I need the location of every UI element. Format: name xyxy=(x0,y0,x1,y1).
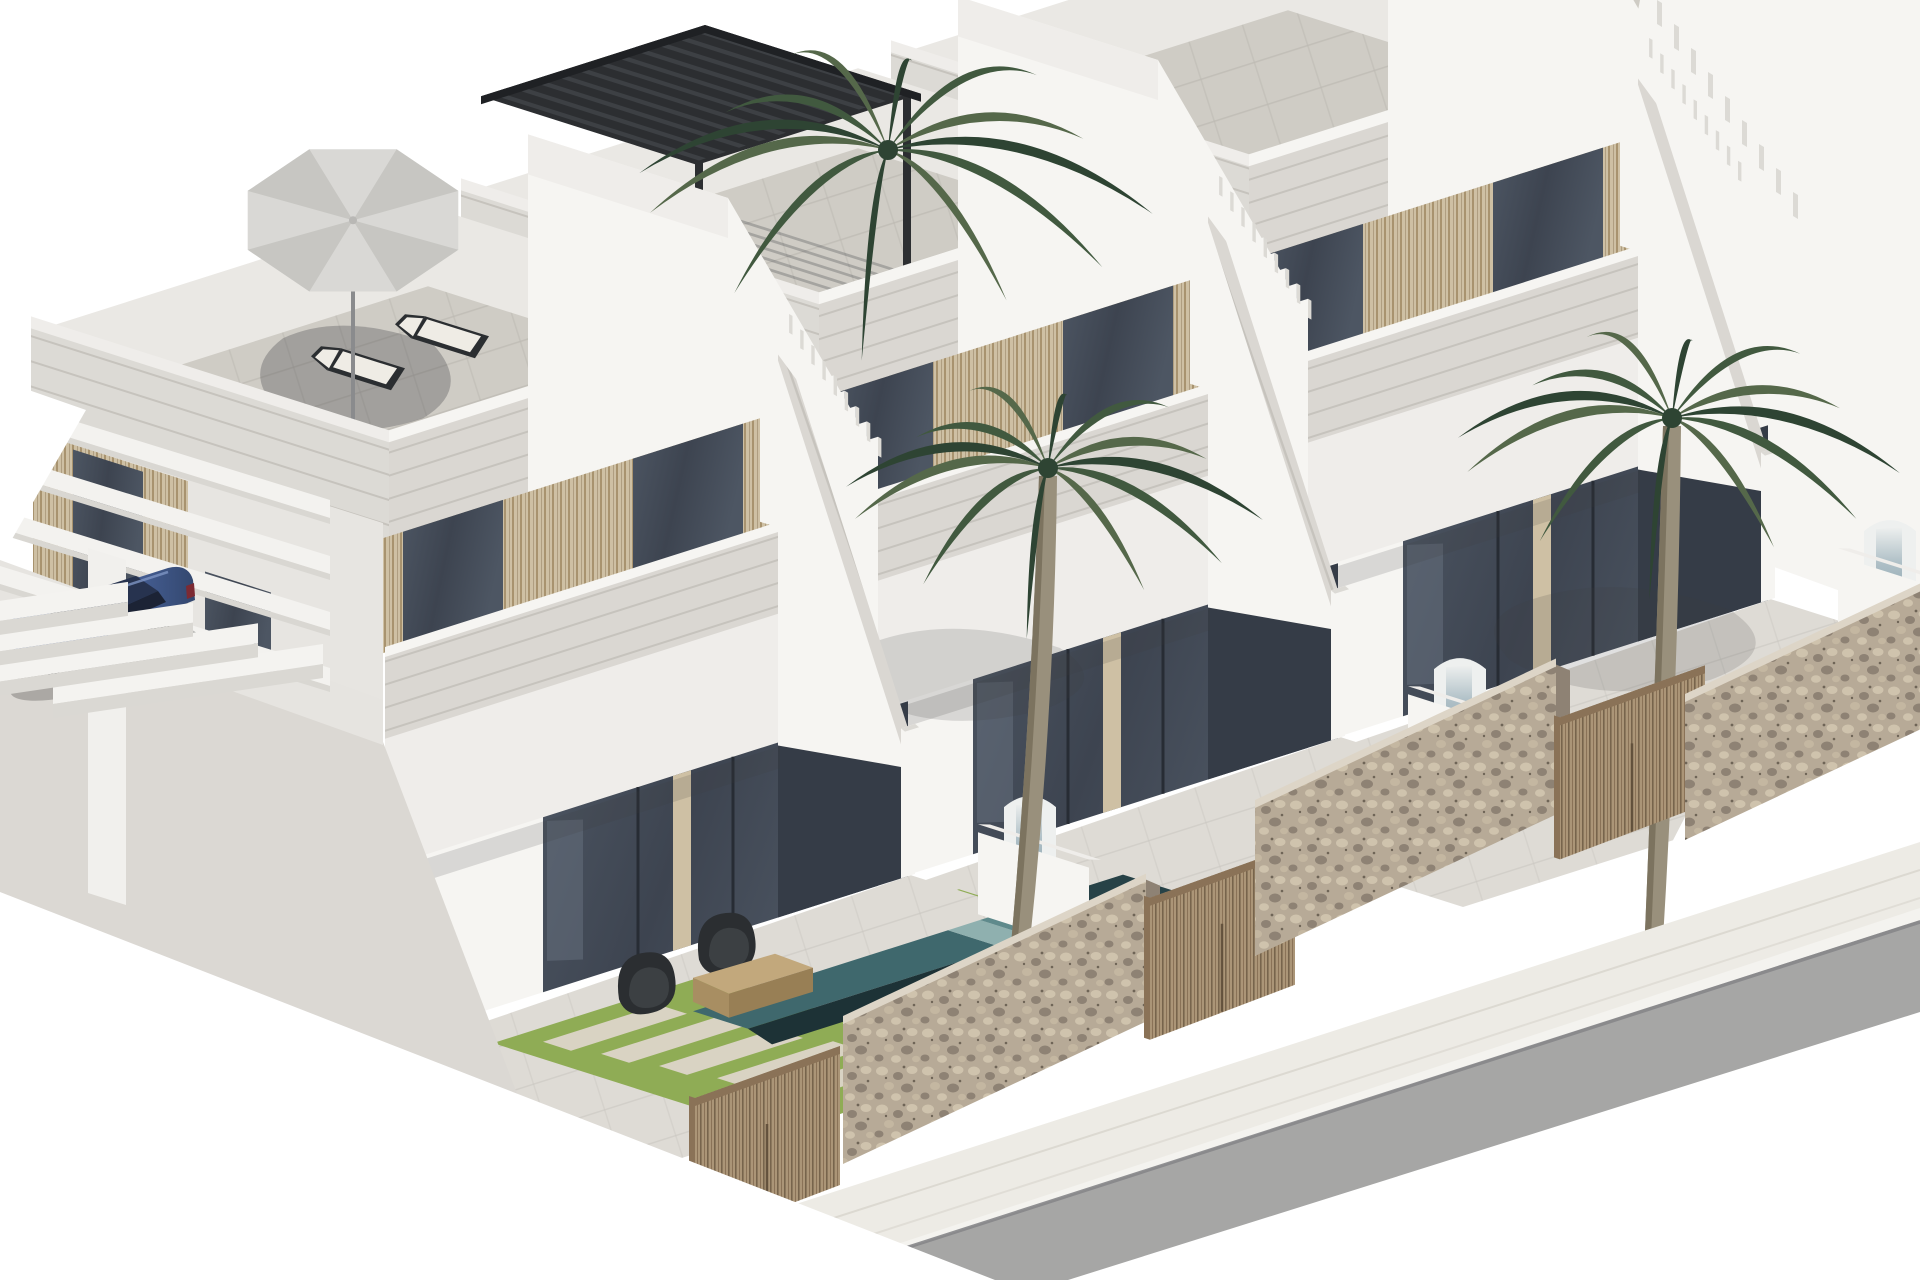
stair-step-face xyxy=(867,421,870,442)
stair-step-face xyxy=(1649,38,1652,59)
stair-step-face xyxy=(1297,283,1300,304)
balcony-corner-pier xyxy=(1620,116,1638,252)
stair-step-face xyxy=(1241,207,1244,228)
prow-column xyxy=(1331,586,1345,741)
villa4-step-face xyxy=(1776,168,1781,195)
stair-step-face xyxy=(1682,84,1685,105)
stair-step-face xyxy=(789,314,792,335)
stair-step-face xyxy=(1727,145,1730,166)
prow-column xyxy=(901,724,915,879)
villa4-step-face xyxy=(1708,72,1713,99)
stair-step-face xyxy=(1660,53,1663,74)
stair-step-face xyxy=(1694,99,1697,120)
palm-crown xyxy=(878,140,898,160)
stair-step-face xyxy=(878,437,881,458)
stair-step-face xyxy=(822,360,825,381)
villa4-step-face xyxy=(1691,48,1696,75)
villa4-step-face xyxy=(1742,120,1747,147)
palm-crown xyxy=(1038,458,1058,478)
villa4-step-face xyxy=(1793,192,1798,219)
balcony-corner-pier xyxy=(1190,254,1208,390)
glass-reflection xyxy=(1407,544,1443,685)
palm-crown xyxy=(1662,408,1682,428)
stair-step-face xyxy=(1286,268,1289,289)
stair-step-face xyxy=(1705,115,1708,136)
villa4-step-face xyxy=(1725,96,1730,123)
stair-step-face xyxy=(800,329,803,350)
parasol-finial xyxy=(349,216,357,224)
stair-step-face xyxy=(811,345,814,366)
balcony-corner-pier xyxy=(760,392,778,528)
stair-step-face xyxy=(1275,253,1278,274)
stair-step-face xyxy=(834,375,837,396)
stair-step-face xyxy=(1252,222,1255,243)
stair-step-face xyxy=(1230,191,1233,212)
villa4-step-face xyxy=(1657,0,1662,27)
stair-step-face xyxy=(845,391,848,412)
glass-reflection xyxy=(547,820,583,961)
stair-step-face xyxy=(1264,237,1267,258)
architectural-render xyxy=(0,0,1920,1280)
stair-step-face xyxy=(856,406,859,427)
stair-step-face xyxy=(1738,161,1741,182)
stair-step-face xyxy=(1671,69,1674,90)
villa4-step-face xyxy=(1759,144,1764,171)
gate-post xyxy=(1144,896,1150,1040)
render-canvas xyxy=(0,0,1920,1280)
villa4-step-face xyxy=(1674,24,1679,51)
gate-post xyxy=(1554,715,1560,859)
stair-step-face xyxy=(1308,299,1311,320)
stair-step-face xyxy=(1219,176,1222,197)
stair-step-face xyxy=(1716,130,1719,151)
